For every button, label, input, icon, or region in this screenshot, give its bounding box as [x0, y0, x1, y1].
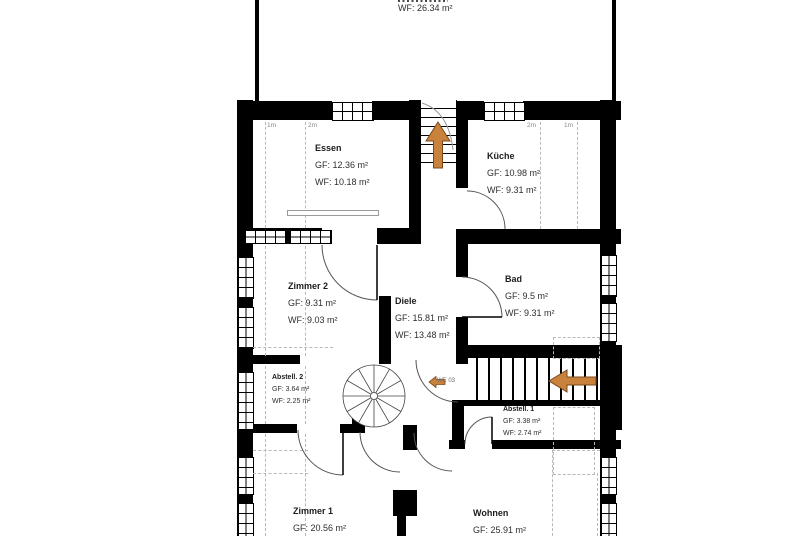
room-gf: GF: 3.64 m² — [272, 384, 311, 396]
room-wf: WF: 9.03 m² — [288, 312, 338, 329]
door-arc — [298, 430, 343, 475]
room-name: Abstell. 1 — [503, 404, 542, 416]
room-label-balkon: WF: 26.34 m² — [398, 1, 453, 15]
plan-annotations — [0, 0, 800, 536]
room-wf: WF: 10.18 m² — [315, 174, 370, 191]
room-wf: WF: 9.31 m² — [487, 182, 540, 199]
room-gf: GF: 10.98 m² — [487, 165, 540, 182]
floor-plan: WF: 26.34 m² Essen GF: 12.36 m² WF: 10.1… — [0, 0, 800, 536]
room-gf: GF: 25.91 m² — [473, 522, 526, 536]
door-arc — [462, 277, 502, 317]
room-gf: GF: 9.5 m² — [505, 288, 555, 305]
stairs-direction-arrow-icon — [549, 370, 596, 392]
room-label-bad: Bad GF: 9.5 m² WF: 9.31 m² — [505, 271, 555, 322]
room-label-zimmer1: Zimmer 1 GF: 20.56 m² — [293, 503, 346, 536]
room-gf: GF: 3.38 m² — [503, 416, 542, 428]
room-wf: WF: 2.25 m² — [272, 396, 311, 408]
room-label-essen: Essen GF: 12.36 m² WF: 10.18 m² — [315, 140, 370, 191]
room-name: Zimmer 1 — [293, 503, 346, 520]
room-name: Küche — [487, 148, 540, 165]
room-label-diele: Diele GF: 15.81 m² WF: 13.48 m² — [395, 293, 450, 344]
room-name: Abstell. 2 — [272, 372, 311, 384]
door-arc — [465, 417, 492, 444]
height-label-1m: 1m — [267, 122, 276, 130]
room-wf: WF: 13.48 m² — [395, 327, 450, 344]
room-label-zimmer2: Zimmer 2 GF: 9.31 m² WF: 9.03 m² — [288, 278, 338, 329]
unit-label: WE 03 — [437, 378, 455, 385]
room-gf: GF: 15.81 m² — [395, 310, 450, 327]
room-label-abstell2: Abstell. 2 GF: 3.64 m² WF: 2.25 m² — [272, 372, 311, 408]
stairs-up-arrow-icon — [426, 122, 450, 168]
room-name: Bad — [505, 271, 555, 288]
room-gf: GF: 20.56 m² — [293, 520, 346, 536]
room-wf: WF: 26.34 m² — [398, 1, 453, 15]
room-label-wohnen: Wohnen GF: 25.91 m² — [473, 505, 526, 536]
room-name: Zimmer 2 — [288, 278, 338, 295]
room-name: Diele — [395, 293, 450, 310]
room-gf: GF: 12.36 m² — [315, 157, 370, 174]
room-wf: WF: 9.31 m² — [505, 305, 555, 322]
room-wf: WF: 2.74 m² — [503, 428, 542, 440]
height-label-1m: 1m — [564, 122, 573, 130]
room-label-abstell1: Abstell. 1 GF: 3.38 m² WF: 2.74 m² — [503, 404, 542, 440]
height-label-2m: 2m — [527, 122, 536, 130]
door-arc — [360, 432, 400, 472]
room-label-kueche: Küche GF: 10.98 m² WF: 9.31 m² — [487, 148, 540, 199]
room-name: Wohnen — [473, 505, 526, 522]
spiral-staircase — [343, 365, 405, 427]
height-label-2m: 2m — [308, 122, 317, 130]
room-gf: GF: 9.31 m² — [288, 295, 338, 312]
door-arc — [414, 433, 452, 471]
room-name: Essen — [315, 140, 370, 157]
